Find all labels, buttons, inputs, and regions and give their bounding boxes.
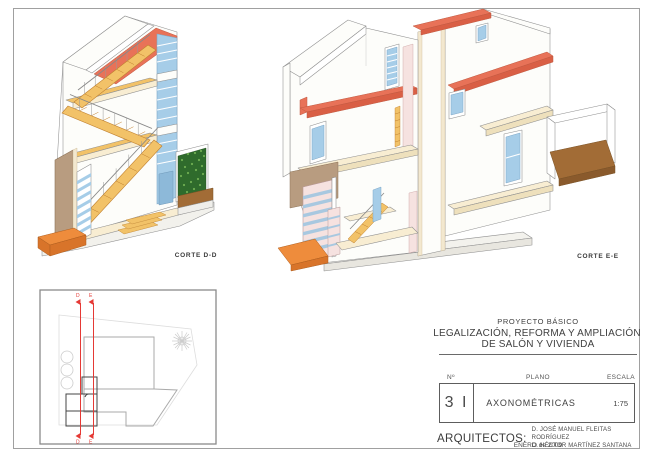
glazed-facade-dd xyxy=(157,34,177,205)
project-title-line2: DE SALÓN Y VIVIENDA xyxy=(437,339,639,350)
central-wall xyxy=(418,26,445,256)
drawing-sheet: CORTE D-D xyxy=(0,0,649,457)
project-type: PROYECTO BÁSICO xyxy=(437,317,639,326)
escala-value: 1:75 xyxy=(588,384,634,422)
svg-text:D: D xyxy=(76,440,80,446)
plano-value: AXONOMÉTRICAS xyxy=(474,384,588,422)
title-divider xyxy=(439,354,637,355)
entrance-step-dd xyxy=(38,228,86,256)
svg-text:D: D xyxy=(76,293,80,299)
center-glazing-strip xyxy=(385,44,399,90)
sheet-info-box: 3 I AXONOMÉTRICAS 1:75 xyxy=(439,383,635,423)
ladder-strip xyxy=(395,106,400,147)
sheet-date: ENERO de 2009 xyxy=(437,442,639,449)
right-block-window-upper xyxy=(449,89,465,119)
garage-door-dd xyxy=(77,164,91,242)
central-window-small xyxy=(476,23,488,43)
corte-ee-label: CORTE E-E xyxy=(558,253,638,260)
corte-dd-label: CORTE D-D xyxy=(156,252,236,259)
tree-symbol xyxy=(172,331,192,351)
corte-dd-drawing xyxy=(30,4,250,264)
project-title-line1: LEGALIZACIÓN, REFORMA Y AMPLIACIÓN xyxy=(431,328,643,339)
left-wall-window xyxy=(310,121,326,164)
architect-1: D. JOSÉ MANUEL FLEITAS RODRÍGUEZ xyxy=(532,427,612,441)
title-block: PROYECTO BÁSICO LEGALIZACIÓN, REFORMA Y … xyxy=(437,303,639,449)
right-block-window-lower xyxy=(504,130,522,186)
corte-ee-drawing xyxy=(270,0,642,272)
terrace-right xyxy=(547,104,615,186)
sheet-number: 3 I xyxy=(440,384,474,422)
key-plan: D D E E xyxy=(39,289,217,445)
escala-header: ESCALA xyxy=(607,374,635,381)
